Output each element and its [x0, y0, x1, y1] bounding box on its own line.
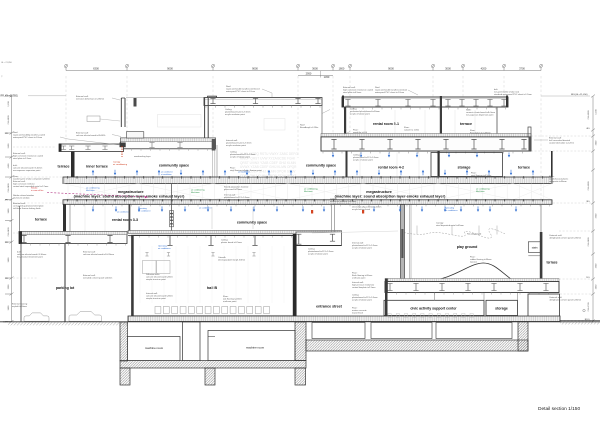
svg-text:play ground: play ground	[457, 245, 478, 249]
svg-text:air conditioner: air conditioner	[199, 207, 212, 210]
svg-text:1,200: 1,200	[596, 109, 598, 115]
svg-text:9000: 9000	[167, 66, 173, 70]
svg-text:QRST UVWX YZAB CDEF GHIJ KLMN: QRST UVWX YZAB CDEF GHIJ KLMN	[240, 161, 297, 165]
svg-text:CDEF GHIJ KLMN OPQR STUV WXYZ: CDEF GHIJ KLMN OPQR STUV WXYZ	[240, 174, 296, 178]
svg-text:entrance street: entrance street	[316, 305, 343, 309]
svg-text:storage: storage	[495, 306, 508, 310]
svg-text:1,200: 1,200	[8, 101, 10, 107]
svg-text:RFL(GL+21,850): RFL(GL+21,850)	[1, 95, 19, 97]
svg-text:Detail section 1/150: Detail section 1/150	[538, 406, 580, 412]
svg-text:civic activity support center: civic activity support center	[410, 306, 457, 310]
svg-text:RFL(GL+21,450): RFL(GL+21,450)	[571, 94, 588, 96]
svg-text:terrace: terrace	[35, 217, 47, 221]
svg-text:(machine layer: sound absorpti: (machine layer: sound absorption layer-s…	[74, 195, 186, 199]
svg-text:Rut playground: Rut playground	[467, 233, 482, 236]
svg-text:9000: 9000	[252, 66, 258, 70]
svg-text:air conditionerat ventilation: air conditionerat ventilation	[161, 171, 173, 176]
svg-text:terrace: terrace	[547, 260, 558, 264]
svg-text:stairs: stairs	[532, 246, 539, 249]
svg-text:storage: storage	[458, 165, 471, 169]
svg-text:megastructure: megastructure	[118, 190, 144, 194]
svg-text:woodcooling layer: woodcooling layer	[134, 155, 151, 158]
svg-text:rental room 3-3: rental room 3-3	[112, 218, 138, 222]
svg-text:3000: 3000	[445, 66, 451, 70]
svg-text:3700: 3700	[519, 66, 525, 70]
svg-text:3600: 3600	[312, 66, 318, 70]
svg-text:GL +21,850: GL +21,850	[1, 62, 13, 64]
svg-text:air conditioner: air conditioner	[117, 210, 129, 213]
svg-text:CH=3000: CH=3000	[588, 110, 590, 120]
svg-text:2950: 2950	[306, 72, 312, 76]
svg-text:UVWX YZAB CDEF GHIJ KLMN OPQR: UVWX YZAB CDEF GHIJ KLMN OPQR	[240, 165, 297, 169]
svg-text:9000: 9000	[388, 66, 394, 70]
svg-text:megastructure: megastructure	[366, 190, 392, 194]
svg-text:community space: community space	[237, 220, 267, 224]
svg-text:terrace: terrace	[58, 164, 70, 168]
svg-text:6300: 6300	[93, 66, 99, 70]
svg-text:(machine layer: sound absorpti: (machine layer: sound absorption layer-s…	[335, 195, 447, 199]
svg-text:rental room 4-2: rental room 4-2	[378, 165, 404, 169]
svg-text:CH=2700: CH=2700	[588, 302, 590, 312]
svg-text:community space: community space	[306, 163, 336, 167]
svg-text:machine room: machine room	[145, 346, 164, 350]
svg-text:CH=2800: CH=2800	[8, 183, 10, 193]
svg-text:inner terrace: inner terrace	[86, 164, 108, 168]
svg-text:4200: 4200	[481, 66, 487, 70]
svg-text:CH=2800: CH=2800	[8, 227, 10, 237]
svg-text:1450: 1450	[324, 75, 330, 79]
svg-text:1800: 1800	[339, 66, 345, 70]
svg-text:terrace: terrace	[460, 122, 472, 126]
svg-text:machine room: machine room	[246, 346, 265, 350]
svg-text:CH=3000: CH=3000	[588, 181, 590, 191]
svg-text:terrace: terrace	[518, 165, 530, 169]
svg-text:CH=3000: CH=3000	[8, 115, 10, 125]
svg-text:community space: community space	[159, 163, 189, 167]
svg-text:External flooring:asphalt t=50: External flooring:asphalt t=50mm	[12, 303, 28, 309]
svg-text:CH=2800: CH=2800	[588, 237, 590, 247]
